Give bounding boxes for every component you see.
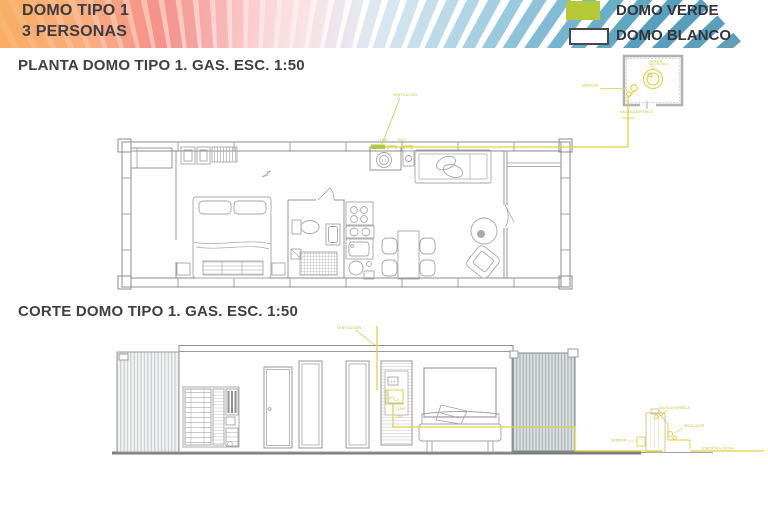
- sheet-title-line1: DOMO TIPO 1: [22, 2, 129, 20]
- plan-wall-right: [561, 142, 570, 287]
- plan-pillow: [199, 201, 231, 214]
- sheet: DOMO TIPO 1 3 PERSONAS PLANTA DOMO TIPO …: [0, 0, 768, 530]
- legend-label-verde: DOMO VERDE: [616, 2, 719, 19]
- section-kitchen-unit: [183, 387, 239, 447]
- section-door: [264, 367, 292, 448]
- tank-detail-plan: TANQUE MEDIDOR VÁLVULA ESFÉRICA: [582, 56, 682, 118]
- plan-chair: [382, 238, 397, 254]
- section-medidor-label: MEDIDOR: [611, 439, 627, 443]
- plan-shower: [300, 252, 337, 275]
- plan-gas-tag2: GAS: [398, 138, 405, 142]
- section-gas-tag1: LLAVE: [396, 407, 406, 411]
- plan-stove: [346, 202, 373, 225]
- plan-medidor-label: MEDIDOR: [582, 84, 599, 88]
- section-valvula-label: VÁLVULA ESFÉRICA: [659, 405, 691, 410]
- plan-gas-tank: [644, 70, 663, 89]
- plan-chair: [382, 260, 397, 276]
- plan-wardrobe: [212, 147, 237, 162]
- plan-tank-label: TANQUE: [649, 60, 664, 64]
- plan-chair: [420, 260, 435, 276]
- legend-label-blanco: DOMO BLANCO: [616, 27, 731, 44]
- section-window: [346, 361, 369, 448]
- sheet-title-line2: 3 PERSONAS: [22, 23, 127, 41]
- plan-sofa: [415, 150, 491, 183]
- plan-dining-table: [398, 231, 419, 279]
- section-ventilacion-label: VENTILACIÓN: [337, 325, 361, 330]
- plan-pillow: [234, 201, 266, 214]
- plan-plant: [471, 218, 497, 244]
- section-roof: [179, 346, 513, 352]
- drawings: TT TANQUE MEDIDOR VÁLVULA ESFÉRICA: [0, 0, 768, 530]
- section-conexion-label: CONEXIÓN A COCINA: [701, 446, 735, 451]
- gas-line-plan: VENTILACIÓN LLAVE GAS: [371, 92, 628, 150]
- plan-top-right-stub: [507, 163, 561, 167]
- plan-armchair: [465, 244, 501, 280]
- plan-heater-label: TT: [382, 158, 387, 163]
- section-wall-left: [117, 352, 179, 452]
- plan-partition-right: [504, 151, 507, 278]
- plan-gas-tag1: LLAVE: [378, 138, 388, 142]
- section-gas-tag2: GAS: [396, 415, 403, 419]
- plan-toilet: [301, 221, 319, 234]
- plan-bath-door: [318, 188, 334, 200]
- plan-chair: [420, 238, 435, 254]
- plan-vent-grille: [371, 145, 385, 150]
- section-window: [299, 361, 322, 448]
- plan-wall-left: [122, 142, 131, 287]
- plan-toilet-tank: [292, 220, 301, 234]
- plan-valvula-label: VÁLVULA ESFÉRICA: [620, 109, 653, 114]
- floor-plan: TT: [118, 139, 572, 289]
- legend-swatch-white: [569, 28, 609, 45]
- plan-title: PLANTA DOMO TIPO 1. GAS. ESC. 1:50: [18, 57, 305, 74]
- plan-ventilacion-label: VENTILACIÓN: [393, 92, 417, 97]
- plan-right-door: [505, 205, 514, 227]
- section-wall-right: [513, 353, 575, 451]
- plan-bed-bench: [203, 261, 263, 275]
- section-drawing: TT: [112, 346, 713, 454]
- corte-title: CORTE DOMO TIPO 1. GAS. ESC. 1:50: [18, 303, 298, 320]
- legend-swatch-green: [566, 1, 600, 20]
- section-regulador-label: REGULADOR: [684, 424, 705, 428]
